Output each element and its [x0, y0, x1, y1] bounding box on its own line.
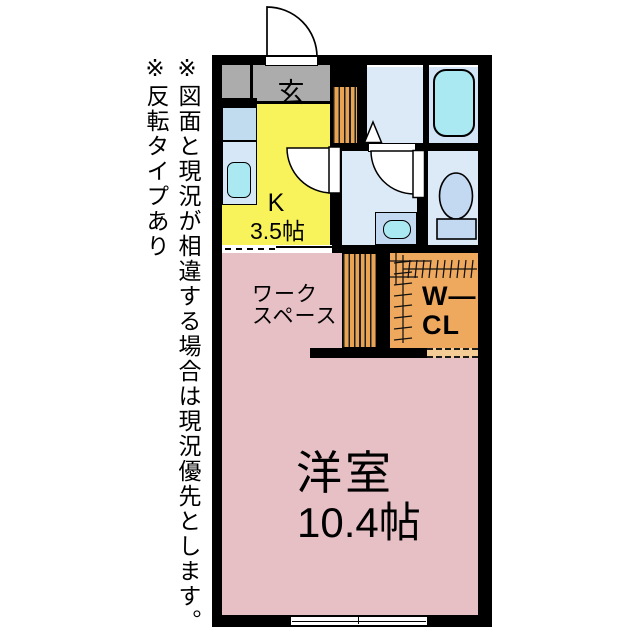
kitchen-opening-dashed-line [225, 248, 275, 250]
wall-workspace-closet [377, 253, 390, 358]
floorplan-page: 玄 K 3.5帖 ワーク スペース W— CL 洋室 10.4帖 ※図面と現況が… [0, 0, 640, 640]
wall-mid-horizontal-lower [332, 245, 478, 253]
room-laundry [367, 67, 423, 143]
western-room-size-label: 10.4帖 [297, 489, 421, 550]
shoe-cabinet [333, 87, 357, 143]
closet-label-line2: CL [422, 310, 460, 341]
wash-basin [383, 220, 411, 239]
window-center-tick [358, 617, 360, 624]
wall-closet-bottom [310, 348, 427, 358]
kitchen-size-label: 3.5帖 [250, 212, 305, 246]
wall-kitchen-washroom [330, 143, 342, 253]
workspace-label-line2: スペース [252, 300, 337, 330]
wall-right [478, 55, 492, 627]
workspace-desk-counter [342, 253, 377, 348]
laundry-washroom-opening [368, 143, 416, 152]
entrance-door-swing [267, 7, 317, 57]
entrance-door-opening [265, 56, 318, 66]
closet-label-line1: W— [422, 281, 476, 312]
disclaimer-note: ※図面と現況が相違する場合は現況優先とします。 [172, 56, 204, 640]
margin-notes: ※図面と現況が相違する場合は現況優先とします。 ※反転タイプあり [140, 56, 204, 640]
wall-left [212, 55, 222, 627]
room-toilet [428, 151, 478, 245]
wall-laundry-bath [423, 65, 429, 143]
kitchen-counter-top [222, 107, 257, 141]
wall-top [212, 55, 492, 65]
kitchen-sink [227, 162, 251, 198]
wall-washroom-toilet [417, 143, 428, 253]
room-entrance-step [222, 65, 250, 98]
entrance-label: 玄 [275, 71, 307, 110]
closet-opening [427, 348, 478, 358]
reverse-type-note: ※反転タイプあり [140, 56, 172, 640]
bathtub [433, 69, 475, 137]
